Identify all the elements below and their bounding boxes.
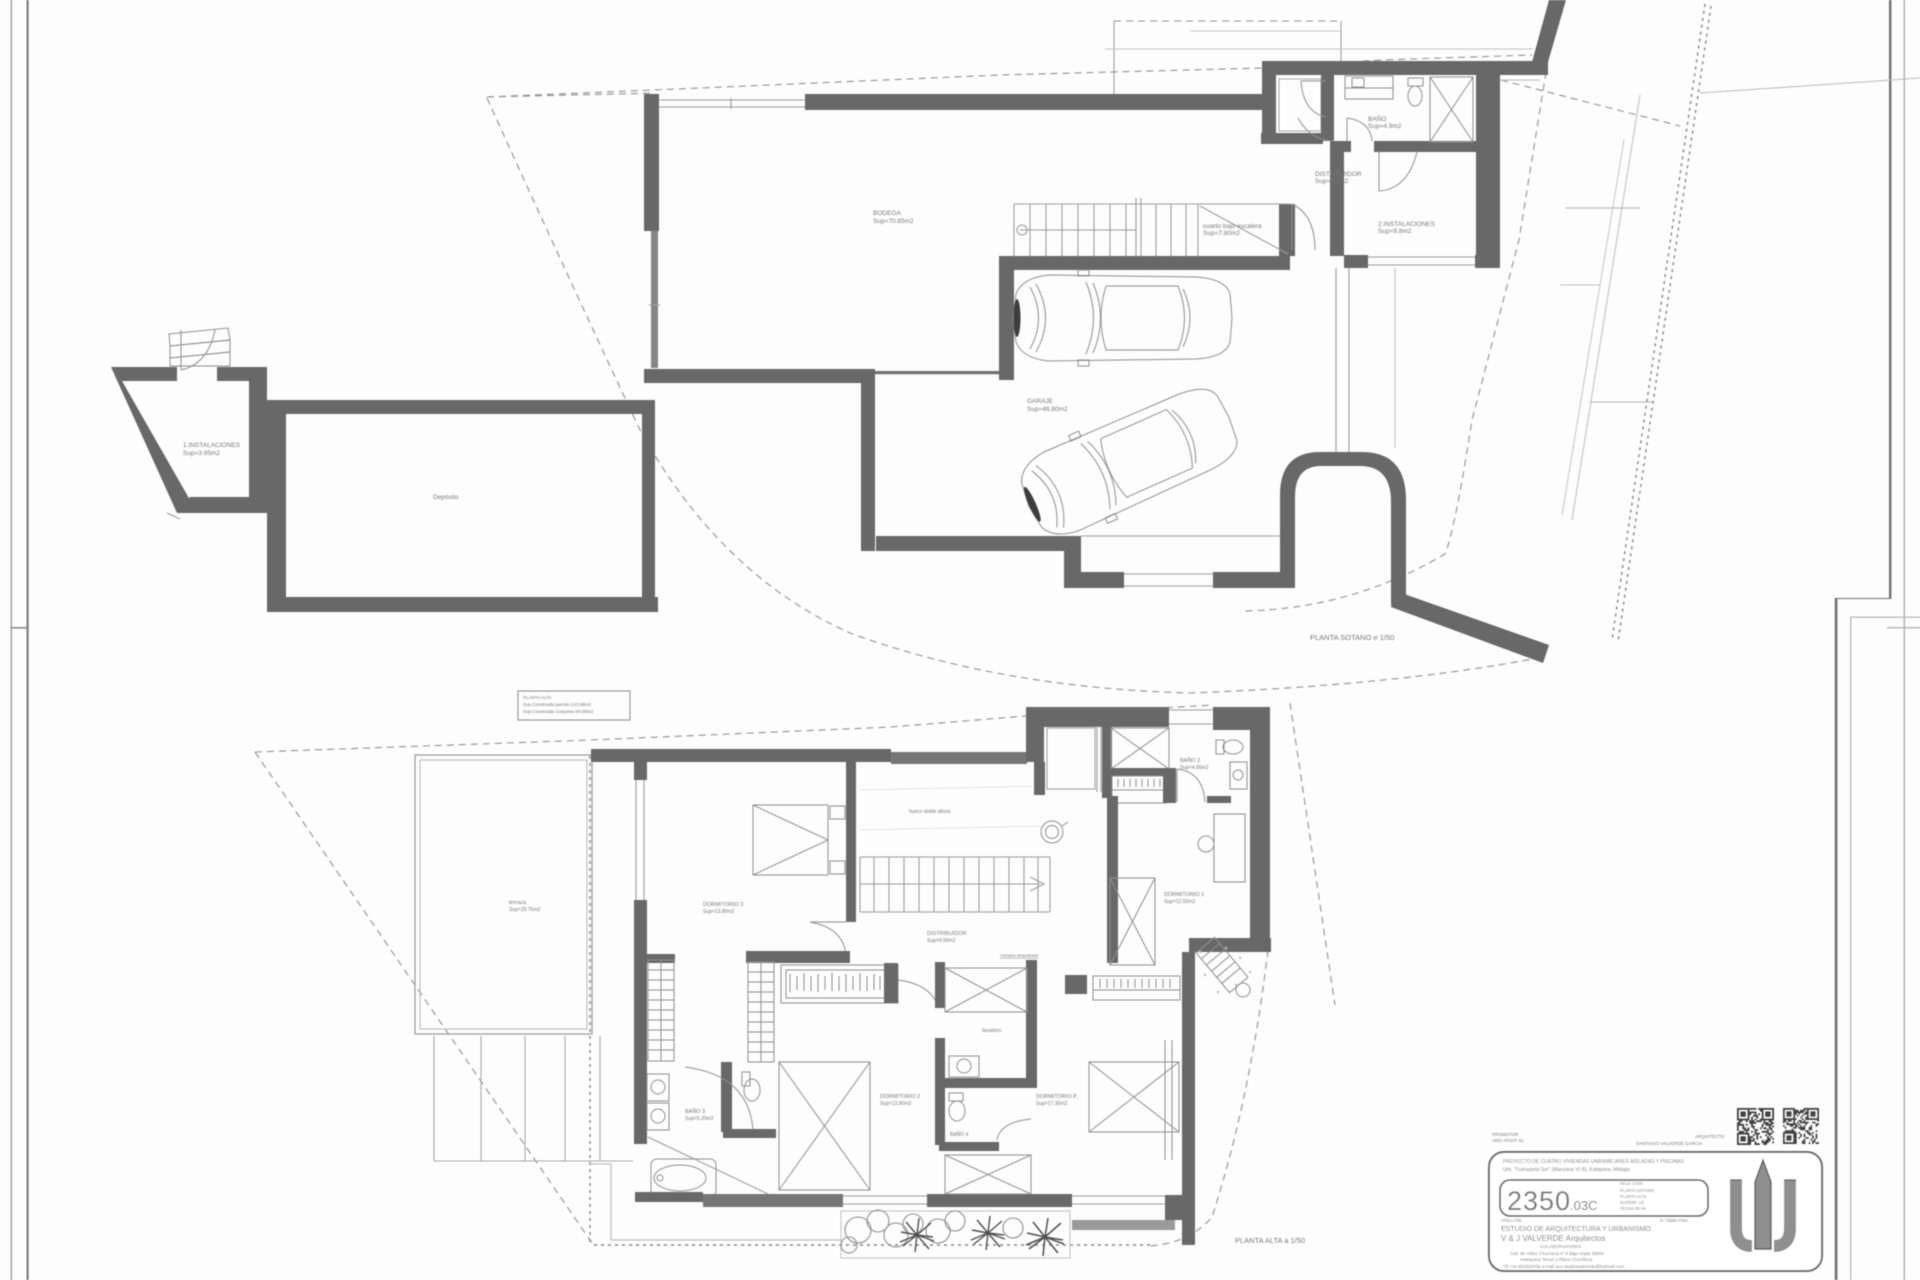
svg-text:SUPERF. A3: SUPERF. A3: [1620, 1200, 1644, 1205]
svg-text:Armario empotrado: Armario empotrado: [1000, 953, 1039, 958]
svg-text:1.INSTALACIONES: 1.INSTALACIONES: [183, 442, 241, 449]
svg-text:DORMITORIO P.: DORMITORIO P.: [1036, 1094, 1078, 1100]
svg-text:PLANTA ALTA: PLANTA ALTA: [1620, 1194, 1647, 1199]
svg-text:SANTIAGO VALVERDE GARCIA: SANTIAGO VALVERDE GARCIA: [1636, 1141, 1702, 1146]
svg-text:DORMITORIO 2: DORMITORIO 2: [880, 1094, 920, 1100]
svg-text:FECHA 05.04: FECHA 05.04: [1620, 1206, 1646, 1211]
svg-text:Sup=46.80m2: Sup=46.80m2: [1027, 406, 1068, 413]
svg-text:DORMITORIO 1: DORMITORIO 1: [1164, 892, 1204, 898]
svg-text:.03C: .03C: [1570, 1198, 1597, 1213]
svg-text:ARQUITECTO: ARQUITECTO: [1695, 1134, 1725, 1139]
svg-text:Sup=5.20m2: Sup=5.20m2: [685, 1116, 714, 1122]
svg-text:Sup=7.80m2: Sup=7.80m2: [1203, 230, 1240, 237]
svg-text:cuarto bajo escalera: cuarto bajo escalera: [1203, 223, 1262, 230]
svg-text:Sup=3.95m2: Sup=3.95m2: [183, 450, 220, 457]
svg-text:PLANTA ALTA: PLANTA ALTA: [523, 695, 552, 700]
svg-text:Depósito: Depósito: [433, 494, 459, 501]
svg-text:BAÑO: BAÑO: [1368, 114, 1386, 123]
svg-text:GARAJE: GARAJE: [1027, 398, 1054, 405]
svg-text:N 73880 PWA: N 73880 PWA: [1660, 1218, 1688, 1223]
svg-text:Sup=4.95m2: Sup=4.95m2: [1180, 765, 1209, 771]
svg-text:Sup=13.90m2: Sup=13.90m2: [880, 1101, 911, 1107]
svg-text:Sup=29.75m2: Sup=29.75m2: [509, 907, 540, 913]
svg-text:DISTRIBUIDOR: DISTRIBUIDOR: [927, 931, 966, 937]
svg-text:Sup=12.50m2: Sup=12.50m2: [1164, 899, 1195, 905]
svg-text:Sup=4.9m2: Sup=4.9m2: [1368, 123, 1402, 130]
svg-text:terraza: terraza: [509, 900, 527, 906]
svg-text:HOJA 1/100: HOJA 1/100: [1620, 1181, 1643, 1186]
svg-text:PLANTA SOTANO e 1/50: PLANTA SOTANO e 1/50: [1310, 633, 1394, 642]
svg-text:COLABORADORES: COLABORADORES: [1540, 1244, 1581, 1249]
svg-text:Sup.Construida parcial=123.88m: Sup.Construida parcial=123.88m2: [523, 702, 592, 707]
svg-text:Tlf +34 952529756 e-mail uno.: Tlf +34 952529756 e-mail uno.studiosvalv…: [1503, 1264, 1625, 1269]
svg-text:Sup.Construida Conjunta=84.95m: Sup.Construida Conjunta=84.95m2: [523, 709, 594, 714]
svg-text:2.INSTALACIONES: 2.INSTALACIONES: [1378, 221, 1436, 228]
svg-text:BAÑO 4: BAÑO 4: [950, 1131, 969, 1138]
svg-text:DISTRIBUIDOR: DISTRIBUIDOR: [1315, 171, 1362, 178]
svg-text:DORMITORIO 3: DORMITORIO 3: [703, 902, 743, 908]
svg-text:ESTUDIO DE ARQUITECTURA Y URBA: ESTUDIO DE ARQUITECTURA Y URBANISMO: [1501, 1226, 1651, 1233]
svg-text:hueco doble altura: hueco doble altura: [909, 809, 950, 815]
svg-text:Sup=5.2m2: Sup=5.2m2: [1315, 178, 1349, 185]
svg-text:Sup=13.80m2: Sup=13.80m2: [703, 909, 734, 915]
svg-text:UNO APSAT SL: UNO APSAT SL: [1492, 1138, 1525, 1143]
svg-text:V & J VALVERDE Arquitectos: V & J VALVERDE Arquitectos: [1501, 1234, 1606, 1243]
svg-text:Sup=17.30m2: Sup=17.30m2: [1036, 1101, 1067, 1107]
svg-text:Sup=70.85m2: Sup=70.85m2: [873, 218, 914, 225]
svg-text:lavadero: lavadero: [982, 1028, 1001, 1034]
svg-text:Sup=9.50m2: Sup=9.50m2: [927, 938, 956, 944]
svg-text:Urb. "Fuensanta Sur" (Manzana: Urb. "Fuensanta Sur" (Manzana VI-B), Est…: [1503, 1167, 1630, 1173]
svg-text:BODEGA: BODEGA: [873, 210, 901, 217]
svg-text:PLANTA SOTANO: PLANTA SOTANO: [1620, 1188, 1655, 1193]
svg-text:Antequera Teruel y Plaza Chu: Antequera Teruel y Plaza Churrifuca: [1520, 1257, 1593, 1262]
svg-text:BAÑO 3: BAÑO 3: [685, 1108, 705, 1115]
svg-text:Sup=9.8m2: Sup=9.8m2: [1378, 228, 1412, 235]
svg-text:AREA PW: AREA PW: [1501, 1218, 1522, 1223]
svg-text:PROYECTO DE CUATRO VIVIENDAS U: PROYECTO DE CUATRO VIVIENDAS UNIFAMILIAR…: [1503, 1159, 1684, 1165]
svg-text:2350: 2350: [1507, 1186, 1571, 1216]
svg-text:Avd. de Vélez Churriana nº 8 B: Avd. de Vélez Churriana nº 8 Bajo Izqda …: [1510, 1251, 1605, 1256]
svg-text:PLANTA ALTA a 1/50: PLANTA ALTA a 1/50: [1235, 1236, 1305, 1245]
svg-text:PROMOTOR: PROMOTOR: [1492, 1132, 1519, 1137]
svg-text:BAÑO 2: BAÑO 2: [1180, 757, 1200, 764]
